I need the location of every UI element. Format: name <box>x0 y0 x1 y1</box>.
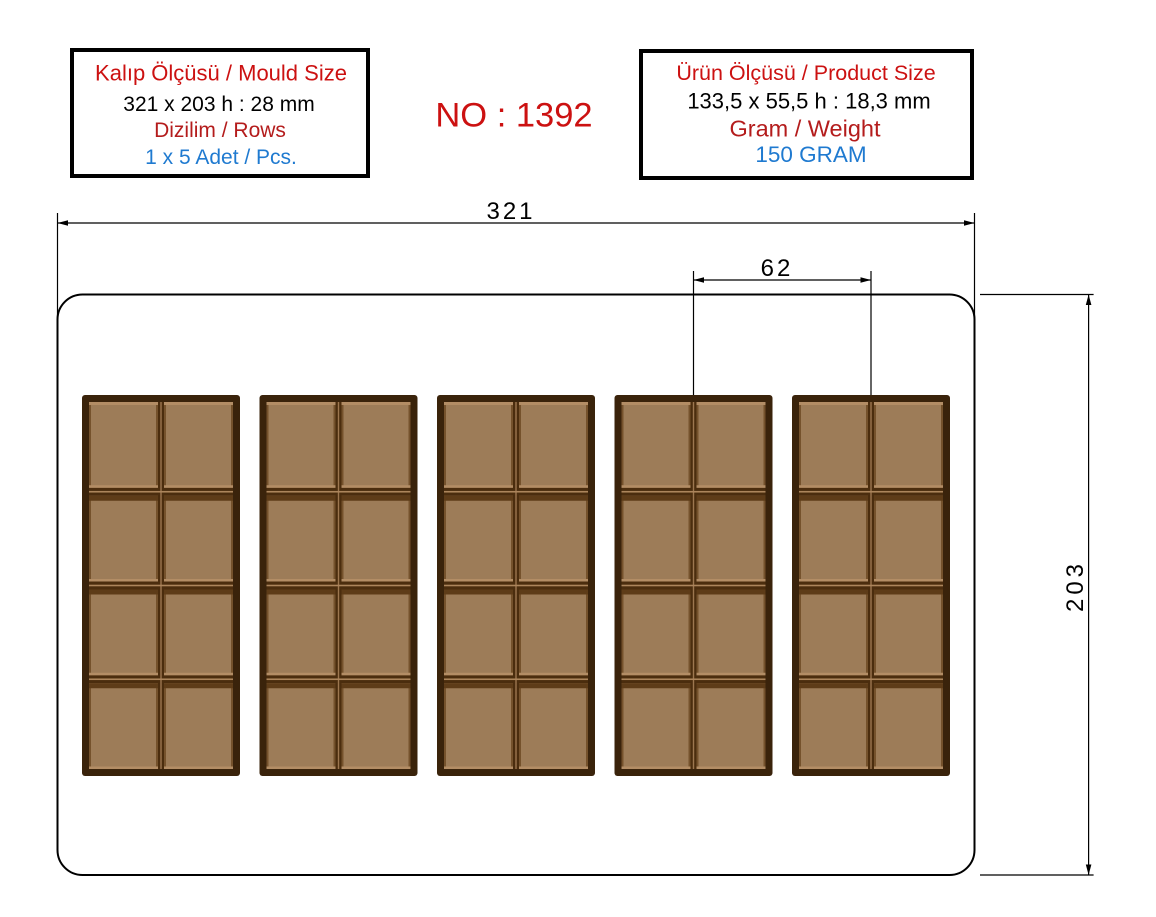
svg-text:Dizilim / Rows: Dizilim / Rows <box>154 119 286 142</box>
svg-text:203: 203 <box>1062 560 1089 612</box>
svg-text:150 GRAM: 150 GRAM <box>755 142 866 167</box>
svg-text:1 x 5 Adet / Pcs.: 1 x 5 Adet / Pcs. <box>145 146 297 169</box>
svg-text:NO : 1392: NO : 1392 <box>435 97 592 135</box>
svg-text:62: 62 <box>761 255 794 282</box>
svg-text:321: 321 <box>486 198 535 225</box>
svg-text:Ürün Ölçüsü / Product Size: Ürün Ölçüsü / Product Size <box>676 61 935 85</box>
svg-text:Kalıp Ölçüsü / Mould Size: Kalıp Ölçüsü / Mould Size <box>95 61 347 86</box>
svg-text:321 x 203 h : 28 mm: 321 x 203 h : 28 mm <box>123 93 314 116</box>
svg-text:Gram / Weight: Gram / Weight <box>729 116 881 142</box>
svg-text:133,5 x 55,5 h : 18,3 mm: 133,5 x 55,5 h : 18,3 mm <box>687 89 930 114</box>
